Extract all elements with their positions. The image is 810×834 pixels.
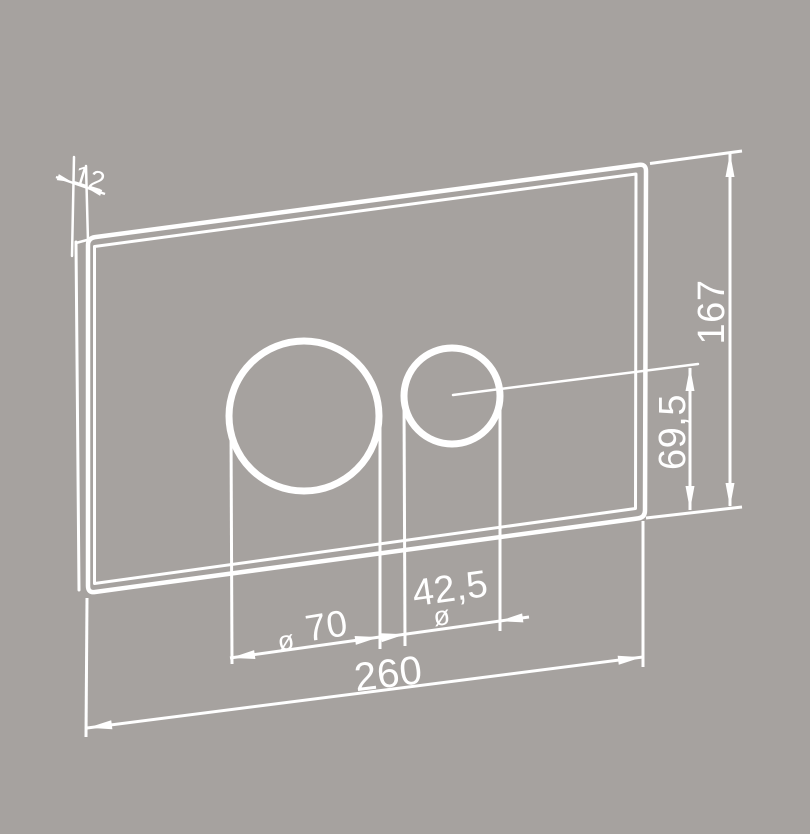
- dim-label-large-diameter: ø 70: [273, 602, 351, 659]
- dimension-arrowheads: [57, 153, 735, 732]
- dimension-lines: [56, 154, 730, 728]
- large-button-outline: [229, 341, 379, 491]
- axis-height-arrow-top: [686, 367, 695, 391]
- large-button-left-extension: [231, 428, 232, 664]
- flush-plate-dimension-drawing: 12 167 69,5 ø 70 42,5 ø 260: [0, 0, 810, 834]
- bottom-right-extension: [646, 507, 742, 518]
- small-button-left-extension: [404, 399, 405, 646]
- height-arrow-bottom: [726, 483, 735, 507]
- large-diameter-prefix: ø: [275, 625, 296, 657]
- dim-label-width: 260: [352, 648, 425, 700]
- dim-label-small-diameter-value: 42,5: [410, 563, 491, 615]
- dim-label-thickness: 12: [70, 160, 108, 198]
- side-edge-top-connector: [76, 240, 87, 243]
- axis-height-arrow-bottom: [686, 486, 695, 510]
- drawing-canvas: 12 167 69,5 ø 70 42,5 ø 260: [0, 0, 810, 834]
- plate-side-face: [76, 240, 87, 590]
- height-arrow-top: [726, 153, 735, 177]
- dim-label-axis-height: 69,5: [652, 394, 694, 470]
- large-diameter-value: 70: [302, 602, 350, 649]
- plate-front-face: [88, 165, 646, 592]
- thickness-extension-left: [72, 157, 74, 256]
- top-right-extension: [650, 151, 742, 164]
- side-edge-line: [76, 242, 79, 590]
- width-extension-left: [86, 598, 87, 737]
- dimension-labels: 12 167 69,5 ø 70 42,5 ø 260: [70, 160, 733, 701]
- dim-label-height: 167: [691, 280, 733, 345]
- small-button-outline: [404, 348, 500, 444]
